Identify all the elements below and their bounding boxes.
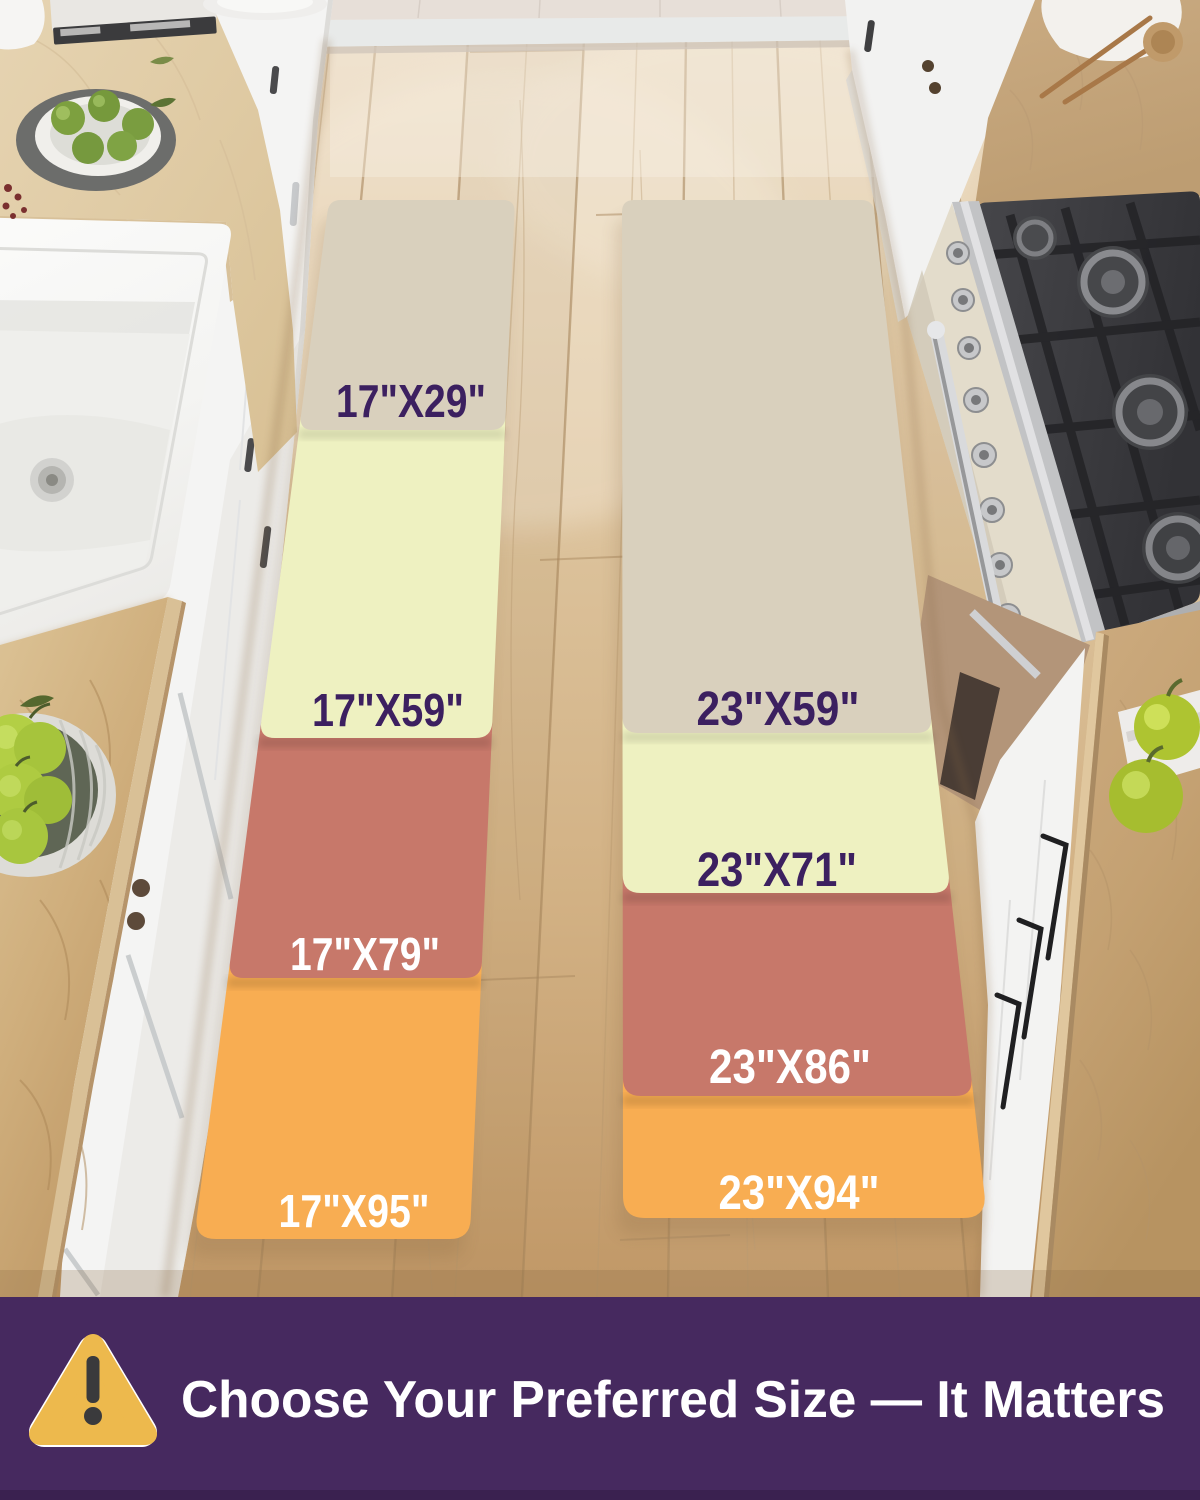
svg-text:17"X29": 17"X29"	[336, 375, 486, 427]
svg-text:23"X71": 23"X71"	[697, 844, 857, 897]
svg-text:23"X86": 23"X86"	[709, 1041, 871, 1094]
svg-text:17"X59": 17"X59"	[312, 684, 464, 736]
svg-text:23"X94": 23"X94"	[719, 1167, 880, 1220]
svg-text:23"X59": 23"X59"	[697, 683, 860, 736]
svg-text:17"X79": 17"X79"	[290, 928, 440, 980]
svg-text:Choose Your Preferred Size — I: Choose Your Preferred Size — It Matters	[181, 1371, 1165, 1429]
svg-text:17"X95": 17"X95"	[279, 1185, 430, 1237]
